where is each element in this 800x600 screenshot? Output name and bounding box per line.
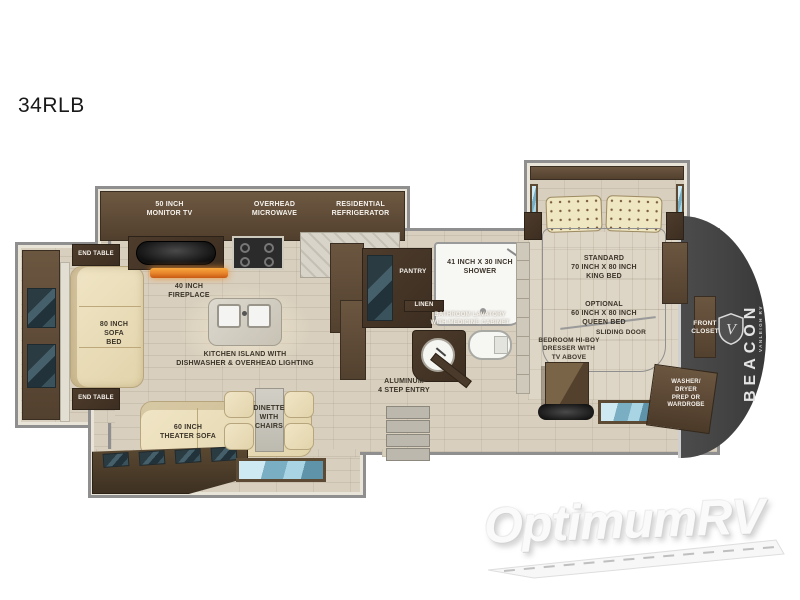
microwave-label: OVERHEAD MICROWAVE xyxy=(232,200,317,218)
fireplace xyxy=(150,268,228,278)
dresser-label: BEDROOM HI-BOY DRESSER WITH TV ABOVE xyxy=(532,337,606,362)
sofa-bed-label: 80 INCH SOFA BED xyxy=(86,320,142,347)
tv-screen xyxy=(136,241,216,265)
bed-standard-label: STANDARD 70 INCH X 80 INCH KING BED xyxy=(550,254,658,281)
entry-steps xyxy=(386,406,430,460)
pantry-label: PANTRY xyxy=(392,268,434,276)
faucet xyxy=(242,311,247,316)
console-window xyxy=(175,448,202,464)
kitchen-island xyxy=(208,298,282,346)
cooktop-range xyxy=(232,236,284,270)
rear-cabinet-glass-door xyxy=(27,288,56,328)
rear-wall-cabinet xyxy=(22,250,60,420)
step-tread xyxy=(386,406,430,419)
nightstand xyxy=(666,212,684,240)
rear-window-strip xyxy=(60,262,70,422)
front-closet-label: FRONT CLOSET xyxy=(682,320,728,337)
entry-label: ALUMINUM 4 STEP ENTRY xyxy=(372,377,436,395)
burner xyxy=(240,243,250,253)
console-window xyxy=(139,450,166,466)
sofa-cushion-seam xyxy=(79,306,141,307)
bathroom-lavatory-label: BATHROOM LAVATORY WITH MEDICINE CABINET xyxy=(412,312,528,328)
bed-optional-label: OPTIONAL 60 INCH X 80 INCH QUEEN BED xyxy=(550,300,658,327)
theater-sofa-label: 60 INCH THEATER SOFA xyxy=(146,423,230,441)
step-tread xyxy=(386,448,430,461)
fireplace-label: 40 INCH FIREPLACE xyxy=(146,282,232,300)
linen-label: LINEN xyxy=(404,302,444,310)
washer-dryer-label: WASHER/ DRYER PREP OR WARDROBE xyxy=(658,379,714,410)
console-window xyxy=(103,452,130,468)
step-tread xyxy=(386,434,430,447)
dinette-label: DINETTE WITH CHAIRS xyxy=(239,404,299,431)
bedroom-wardrobe xyxy=(662,242,688,304)
shower-label: 41 INCH X 30 INCH SHOWER xyxy=(438,258,522,276)
burner xyxy=(264,243,274,253)
end-table-label: END TABLE xyxy=(72,395,120,403)
burner xyxy=(264,257,274,267)
sink-basin xyxy=(247,304,271,328)
brand-tagline-vertical: VANLEIGH RV xyxy=(758,282,763,352)
step-tread xyxy=(386,420,430,433)
road-graphic xyxy=(486,538,791,580)
theater-slide-window xyxy=(236,458,326,482)
burner xyxy=(240,257,250,267)
toilet-tank xyxy=(494,336,508,354)
dresser xyxy=(545,362,589,408)
bed-headboard xyxy=(530,166,684,180)
refrigerator-label: RESIDENTIAL REFRIGERATOR xyxy=(318,200,403,218)
watermark: OptimumRV xyxy=(478,486,798,581)
monitor-tv-label: 50 INCH MONITOR TV xyxy=(122,200,217,218)
page: { "page": { "title": "34RLB" }, "brand":… xyxy=(0,0,800,600)
rear-cabinet-glass-door xyxy=(27,344,56,388)
toilet xyxy=(468,330,512,360)
end-table-label: END TABLE xyxy=(72,251,120,259)
kitchen-island-label: KITCHEN ISLAND WITH DISHWASHER & OVERHEA… xyxy=(172,350,318,368)
nightstand xyxy=(524,212,542,240)
bedroom-rug xyxy=(538,404,594,420)
pantry-glass-door xyxy=(367,255,393,321)
sink-basin xyxy=(217,304,241,328)
